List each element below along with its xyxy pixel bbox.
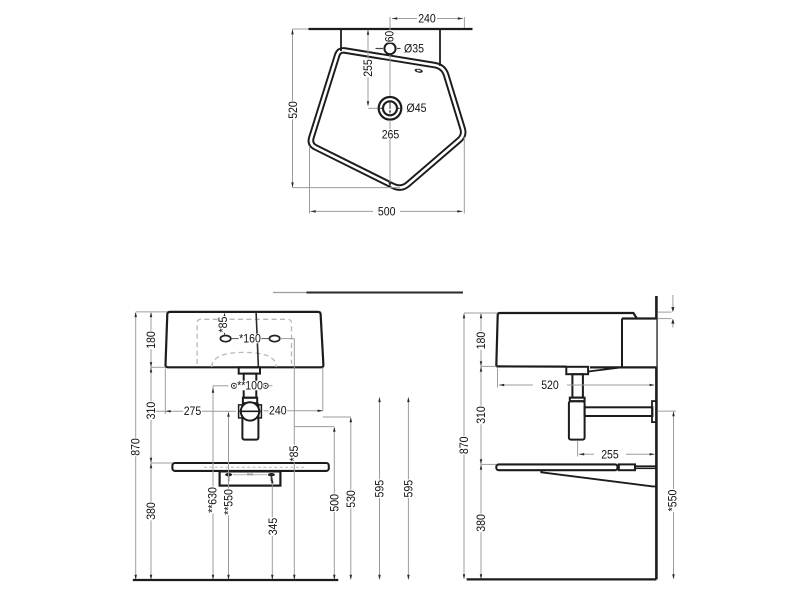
svg-text:530: 530 [344, 490, 358, 508]
svg-text:595: 595 [373, 480, 387, 498]
svg-text:60: 60 [385, 31, 397, 42]
svg-text:*85: *85 [216, 316, 230, 332]
svg-text:380: 380 [474, 514, 488, 532]
svg-text:180: 180 [474, 331, 488, 349]
svg-text:**100: **100 [237, 379, 263, 393]
svg-text:255: 255 [601, 448, 619, 462]
svg-text:240: 240 [418, 12, 436, 26]
svg-text:Ø35: Ø35 [404, 42, 424, 56]
svg-text:275: 275 [184, 404, 202, 418]
svg-text:180: 180 [144, 331, 158, 349]
svg-text:595: 595 [401, 480, 415, 498]
svg-text:240: 240 [269, 404, 287, 418]
svg-text:*160: *160 [239, 332, 261, 346]
svg-text:520: 520 [286, 101, 300, 119]
svg-text:*85: *85 [287, 445, 301, 461]
svg-text:500: 500 [327, 494, 341, 512]
svg-text:**630: **630 [206, 487, 220, 513]
svg-text:870: 870 [128, 438, 142, 456]
svg-text:345: 345 [266, 517, 280, 535]
svg-text:*550: *550 [666, 489, 680, 511]
svg-text:500: 500 [378, 204, 396, 218]
svg-text:520: 520 [541, 378, 559, 392]
svg-text:Ø45: Ø45 [407, 101, 427, 115]
svg-text:870: 870 [457, 436, 471, 454]
svg-text:255: 255 [361, 59, 375, 77]
svg-text:380: 380 [144, 502, 158, 520]
svg-text:310: 310 [144, 402, 158, 420]
svg-text:310: 310 [474, 406, 488, 424]
svg-text:265: 265 [382, 127, 400, 141]
svg-text:**550: **550 [222, 489, 236, 515]
svg-text:540: 540 [247, 473, 253, 477]
